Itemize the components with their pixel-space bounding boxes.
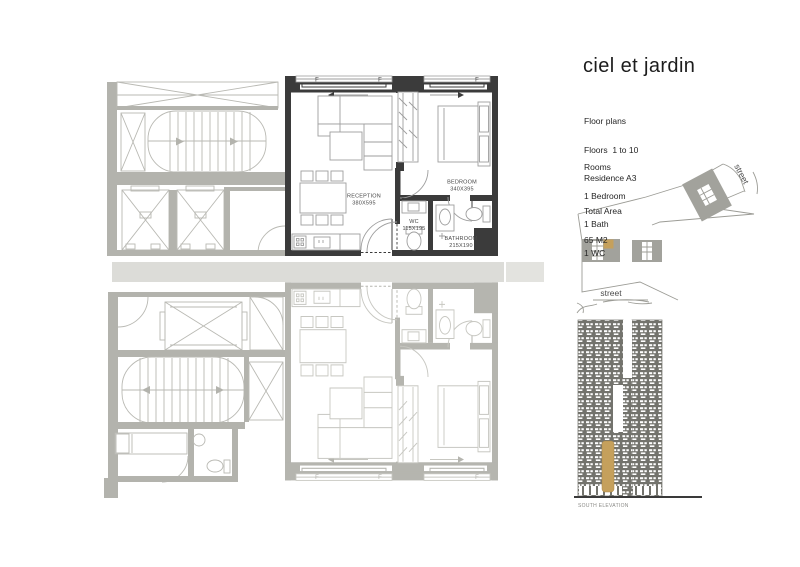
rooms-heading: Rooms <box>584 163 626 173</box>
window-label: F <box>315 78 319 84</box>
elevation-caption: SOUTH ELEVATION <box>578 503 629 509</box>
reception-dims: 380X595 <box>352 201 375 207</box>
wc-label: WC <box>409 219 419 225</box>
street-label-right: street <box>732 162 751 186</box>
bathroom-dims: 215X190 <box>449 243 472 249</box>
window-label: F <box>378 78 382 84</box>
slab-band <box>112 262 504 282</box>
building-core-upper <box>107 82 285 256</box>
plan-info-line1: Floor plans <box>584 117 638 127</box>
window-label-ghost: F <box>475 475 479 481</box>
elevation-link <box>623 378 632 496</box>
street-label-bottom: street <box>600 288 622 298</box>
window-label: F <box>475 78 479 84</box>
site-building-b <box>632 240 662 262</box>
building-core-lower <box>104 292 285 498</box>
bedroom-dims: 340X395 <box>450 187 473 193</box>
slab-band-right <box>506 262 544 282</box>
page: F F F F F F <box>0 0 800 567</box>
wc-dims: 115X195 <box>402 226 425 232</box>
window-label-ghost: F <box>315 475 319 481</box>
bedroom-label: BEDROOM <box>447 180 477 186</box>
elevation: SOUTH ELEVATION <box>574 300 702 509</box>
unit-ghost <box>285 282 498 480</box>
elevation-unit-highlight <box>602 441 614 492</box>
bathroom-label: BATHROOM <box>445 236 478 242</box>
unit-highlighted <box>285 76 498 256</box>
total-area: Total Area 65 M2 <box>584 188 622 264</box>
elevation-tower-right <box>632 320 662 496</box>
drawing: F F F F F F <box>0 0 800 567</box>
total-area-heading: Total Area <box>584 207 622 217</box>
window-label-ghost: F <box>378 475 382 481</box>
reception-label: RECEPTION <box>347 194 381 200</box>
site-building-street <box>682 168 732 221</box>
page-title: ciel et jardin <box>583 55 695 78</box>
total-area-value: 65 M2 <box>584 236 622 246</box>
